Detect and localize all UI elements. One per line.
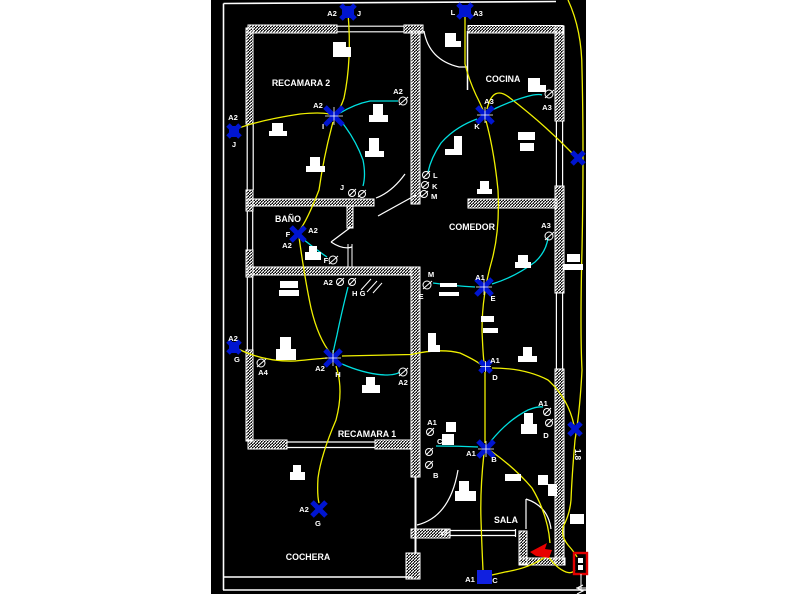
svg-text:COMEDOR: COMEDOR xyxy=(449,222,496,232)
svg-text:B: B xyxy=(491,455,497,464)
svg-text:A1: A1 xyxy=(427,418,437,427)
svg-text:RECAMARA 1: RECAMARA 1 xyxy=(338,429,396,439)
svg-text:C: C xyxy=(437,437,443,446)
svg-text:A2: A2 xyxy=(308,226,318,235)
svg-text:D: D xyxy=(543,431,549,440)
svg-text:E: E xyxy=(418,292,423,301)
svg-text:A1: A1 xyxy=(465,575,475,584)
svg-text:A2: A2 xyxy=(228,113,238,122)
svg-text:RECAMARA 2: RECAMARA 2 xyxy=(272,78,330,88)
svg-text:J: J xyxy=(340,183,344,192)
svg-text:K: K xyxy=(474,122,480,131)
svg-text:H: H xyxy=(335,370,340,379)
svg-text:G: G xyxy=(315,519,321,528)
svg-text:A2: A2 xyxy=(398,378,408,387)
svg-text:1.8: 1.8 xyxy=(573,449,582,461)
svg-text:F: F xyxy=(286,230,291,239)
svg-text:A1: A1 xyxy=(490,356,500,365)
svg-text:A2: A2 xyxy=(313,101,323,110)
svg-text:M: M xyxy=(431,192,437,201)
svg-text:A4: A4 xyxy=(258,368,268,377)
svg-text:L: L xyxy=(451,8,456,17)
svg-text:A1: A1 xyxy=(466,449,476,458)
svg-text:A2: A2 xyxy=(393,87,403,96)
svg-text:M: M xyxy=(428,270,434,279)
svg-text:A2: A2 xyxy=(299,505,309,514)
svg-text:A2: A2 xyxy=(327,9,337,18)
svg-text:B: B xyxy=(433,471,439,480)
svg-text:A3: A3 xyxy=(542,103,552,112)
svg-text:C: C xyxy=(492,576,498,585)
svg-text:A3: A3 xyxy=(541,221,551,230)
svg-text:A1: A1 xyxy=(538,399,548,408)
svg-text:F: F xyxy=(324,256,329,265)
svg-text:J: J xyxy=(357,9,361,18)
svg-text:L: L xyxy=(433,171,438,180)
svg-text:A1: A1 xyxy=(475,273,485,282)
svg-text:J: J xyxy=(232,140,236,149)
svg-text:COCINA: COCINA xyxy=(486,74,521,84)
svg-text:G: G xyxy=(234,355,240,364)
svg-text:COCHERA: COCHERA xyxy=(286,552,331,562)
svg-text:E: E xyxy=(490,294,495,303)
svg-text:A3: A3 xyxy=(473,9,483,18)
svg-text:A2: A2 xyxy=(315,364,325,373)
svg-text:A2: A2 xyxy=(282,241,292,250)
svg-text:K: K xyxy=(432,182,438,191)
svg-text:A2: A2 xyxy=(323,278,333,287)
svg-text:I: I xyxy=(322,122,324,131)
svg-text:A3: A3 xyxy=(484,97,494,106)
svg-text:D: D xyxy=(492,373,498,382)
svg-text:A2: A2 xyxy=(228,334,238,343)
svg-text:BAÑO: BAÑO xyxy=(275,214,301,224)
svg-text:H G: H G xyxy=(352,289,366,298)
svg-text:SALA: SALA xyxy=(494,515,519,525)
